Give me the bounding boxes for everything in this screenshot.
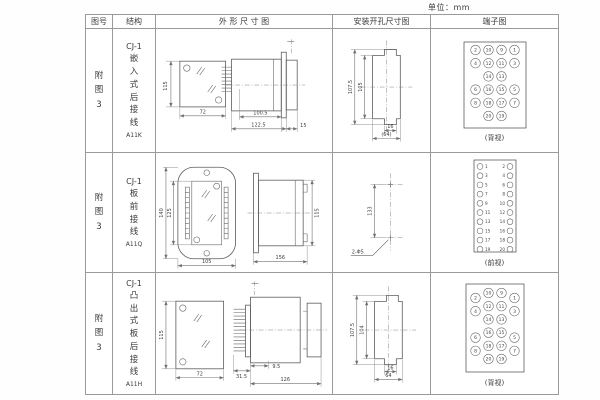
terminal-number: 3 bbox=[513, 60, 516, 66]
terminal-pins-comb bbox=[222, 67, 232, 91]
terminal-number: 9 bbox=[485, 200, 488, 205]
dim-label: 115 bbox=[163, 81, 169, 90]
mounting-hole-drawing-a11k: 107.5 105 16 (64) bbox=[333, 29, 430, 153]
terminal-pin bbox=[507, 172, 513, 178]
dim-label: 9.5 bbox=[272, 363, 280, 369]
terminal-number: 8 bbox=[474, 100, 477, 106]
terminal-diagram-back-view: 2109141211314136161558181772019 bbox=[460, 39, 530, 131]
terminal-view-label: (前视) bbox=[485, 258, 504, 268]
terminal-pin bbox=[507, 218, 513, 224]
terminal-number: 10 bbox=[499, 200, 505, 205]
terminal-number: 13 bbox=[498, 316, 504, 322]
dim-label: 133 bbox=[368, 206, 374, 215]
outline-cell-row2: 140 125 105 156 115 bbox=[156, 153, 333, 273]
terminal-number: 7 bbox=[513, 348, 516, 354]
outline-cell-row1: 115 72 100.5 122.5 bbox=[156, 29, 333, 153]
mounting-hole-drawing-a11h: 107.5 104 16 64 bbox=[333, 273, 430, 395]
structure-desc: 嵌入式后接线 bbox=[129, 53, 139, 130]
terminal-number: 2 bbox=[502, 164, 505, 169]
terminal-cell-row1: 2109141211314136161558181772019 (背视) bbox=[431, 29, 559, 153]
dim-label: 105 bbox=[202, 259, 211, 265]
terminal-number: 20 bbox=[485, 113, 491, 119]
dim-label: 122.5 bbox=[251, 122, 265, 128]
dim-label: 156 bbox=[276, 255, 285, 261]
outline-drawing-a11k: 115 72 100.5 122.5 bbox=[156, 29, 332, 153]
terminal-number: 19 bbox=[498, 113, 504, 119]
terminal-number: 4 bbox=[474, 60, 477, 66]
terminal-diagram-front-view: 1234567891011121314151617181920 bbox=[467, 158, 523, 256]
terminal-number: 8 bbox=[502, 191, 505, 196]
terminal-pin bbox=[507, 182, 513, 188]
terminal-pin bbox=[477, 172, 483, 178]
terminal-pin-grid: 2109141211314136161558181772019 bbox=[470, 45, 519, 121]
dim-label: 126 bbox=[281, 377, 290, 383]
terminal-number: 14 bbox=[485, 73, 491, 79]
terminal-pin bbox=[507, 200, 513, 206]
terminal-diagram-back-view: 2109141211314136161558181772019 bbox=[460, 280, 530, 376]
terminal-number: 3 bbox=[485, 173, 488, 178]
dim-label: 104 bbox=[360, 325, 366, 334]
terminal-number: 18 bbox=[485, 343, 491, 349]
dim-label: 125 bbox=[167, 208, 173, 217]
terminal-pin bbox=[477, 191, 483, 197]
terminal-number: 6 bbox=[474, 87, 477, 93]
terminal-number: 5 bbox=[485, 182, 488, 187]
terminal-pin bbox=[507, 237, 513, 243]
structure-desc: 板前接线 bbox=[129, 188, 139, 239]
dim-label: 2-Φ5 bbox=[352, 249, 364, 255]
terminal-pin bbox=[477, 200, 483, 206]
terminal-number: 6 bbox=[502, 182, 505, 187]
terminal-pin bbox=[477, 209, 483, 215]
terminal-number: 1 bbox=[513, 295, 516, 301]
terminal-pin bbox=[477, 218, 483, 224]
dim-label: 64 bbox=[385, 373, 391, 379]
terminal-number: 12 bbox=[499, 210, 505, 215]
header-terminal: 端子图 bbox=[431, 15, 559, 29]
structure-cell-row2: CJ-1 板前接线 A11Q bbox=[113, 153, 156, 273]
terminal-number: 15 bbox=[498, 87, 504, 93]
terminal-number: 5 bbox=[513, 87, 516, 93]
structure-cell-row1: CJ-1 嵌入式后接线 A11K bbox=[113, 29, 156, 153]
structure-code: A11H bbox=[126, 381, 142, 388]
terminal-pin bbox=[477, 246, 483, 252]
dim-label: 140 bbox=[159, 208, 165, 217]
terminal-number: 14 bbox=[499, 219, 505, 224]
terminal-number: 8 bbox=[474, 348, 477, 354]
figure-cell-row1: 附图3 bbox=[86, 29, 113, 153]
terminal-number: 17 bbox=[498, 343, 504, 349]
structure-code: A11K bbox=[126, 132, 142, 139]
structure-cell-row3: CJ-1 凸出式板后接线 A11H bbox=[113, 273, 156, 395]
structure-model: CJ-1 bbox=[126, 177, 142, 186]
terminal-pin bbox=[477, 182, 483, 188]
terminal-number: 16 bbox=[485, 87, 491, 93]
terminal-number: 9 bbox=[500, 290, 503, 296]
header-figure: 图号 bbox=[86, 15, 113, 29]
dim-label: 115 bbox=[315, 208, 321, 217]
relay-front-view bbox=[180, 61, 226, 107]
terminal-number: 14 bbox=[485, 316, 491, 322]
terminal-cell-row3: 2109141211314136161558181772019 (背视) bbox=[431, 273, 559, 395]
outline-cell-row3: 115 72 31.5 9.5 bbox=[156, 273, 333, 395]
dim-label: 72 bbox=[197, 371, 203, 377]
structure-model: CJ-1 bbox=[126, 42, 142, 51]
terminal-number: 11 bbox=[498, 303, 504, 309]
terminal-cell-row2: 1234567891011121314151617181920 (前视) bbox=[431, 153, 559, 273]
terminal-number: 5 bbox=[513, 335, 516, 341]
header-outline: 外 形 尺 寸 图 bbox=[156, 15, 333, 29]
structure-desc: 凸出式板后接线 bbox=[129, 290, 139, 379]
outline-drawing-a11h: 115 72 31.5 9.5 bbox=[156, 273, 332, 395]
outline-drawing-a11q: 140 125 105 156 115 bbox=[156, 153, 332, 273]
mounting-cell-row2: 133 2-Φ5 bbox=[333, 153, 431, 273]
terminal-number: 10 bbox=[485, 47, 491, 53]
dim-label: 31.5 bbox=[236, 373, 247, 379]
terminal-number: 20 bbox=[499, 246, 505, 251]
terminal-number: 15 bbox=[498, 330, 504, 336]
terminal-number: 9 bbox=[500, 47, 503, 53]
terminal-number: 11 bbox=[485, 210, 491, 215]
terminal-number: 16 bbox=[485, 330, 491, 336]
dim-label: 107.5 bbox=[348, 79, 354, 93]
terminal-pin bbox=[507, 228, 513, 234]
terminal-pin bbox=[507, 209, 513, 215]
dim-label: 115 bbox=[159, 330, 165, 339]
figure-number: 附图3 bbox=[94, 191, 105, 234]
unit-label: 单位：mm bbox=[428, 2, 470, 13]
terminal-number: 12 bbox=[485, 60, 491, 66]
dim-label: 16 bbox=[387, 124, 393, 130]
terminal-pin bbox=[507, 246, 513, 252]
terminal-number: 7 bbox=[513, 100, 516, 106]
terminal-number: 17 bbox=[498, 100, 504, 106]
terminal-number: 20 bbox=[485, 356, 491, 362]
terminal-number: 13 bbox=[498, 73, 504, 79]
terminal-number: 12 bbox=[485, 303, 491, 309]
terminal-view-label: (背视) bbox=[485, 133, 504, 143]
terminal-pin bbox=[507, 191, 513, 197]
dim-label: 15 bbox=[300, 122, 306, 128]
mounting-hole-drawing-a11q: 133 2-Φ5 bbox=[333, 153, 430, 273]
terminal-number: 1 bbox=[513, 47, 516, 53]
terminal-number: 18 bbox=[499, 237, 505, 242]
figure-cell-row2: 附图3 bbox=[86, 153, 113, 273]
terminal-number: 3 bbox=[513, 308, 516, 314]
terminal-number: 2 bbox=[474, 47, 477, 53]
dim-label: (64) bbox=[381, 132, 391, 138]
dim-label: 107.5 bbox=[350, 322, 356, 336]
terminal-number: 4 bbox=[474, 308, 477, 314]
terminal-number: 13 bbox=[485, 219, 491, 224]
terminal-number: 15 bbox=[485, 228, 491, 233]
figure-number: 附图3 bbox=[94, 69, 105, 112]
terminal-number: 7 bbox=[485, 191, 488, 196]
dim-label: 100.5 bbox=[253, 110, 267, 116]
mounting-cell-row1: 107.5 105 16 (64) bbox=[333, 29, 431, 153]
structure-model: CJ-1 bbox=[126, 279, 142, 288]
terminal-number: 1 bbox=[485, 164, 488, 169]
terminal-pin bbox=[477, 228, 483, 234]
terminal-number: 11 bbox=[498, 60, 504, 66]
terminal-number: 2 bbox=[474, 295, 477, 301]
dim-label: 72 bbox=[200, 109, 206, 115]
figure-number: 附图3 bbox=[94, 312, 105, 355]
dim-label: 16 bbox=[387, 365, 393, 371]
terminal-number: 16 bbox=[499, 228, 505, 233]
terminal-pin-grid: 2109141211314136161558181772019 bbox=[470, 288, 519, 364]
terminal-pin-columns: 1234567891011121314151617181920 bbox=[477, 163, 513, 252]
terminal-number: 10 bbox=[485, 290, 491, 296]
terminal-pin bbox=[477, 237, 483, 243]
header-mounting: 安装开孔尺寸图 bbox=[333, 15, 431, 29]
terminal-pin bbox=[477, 163, 483, 169]
terminal-number: 19 bbox=[498, 356, 504, 362]
dim-label: 105 bbox=[358, 82, 364, 91]
terminal-number: 17 bbox=[485, 237, 491, 242]
terminal-pin bbox=[507, 163, 513, 169]
header-structure: 结构 bbox=[113, 15, 156, 29]
structure-code: A11Q bbox=[126, 241, 142, 248]
mounting-cell-row3: 107.5 104 16 64 bbox=[333, 273, 431, 395]
spec-table: 图号 结构 外 形 尺 寸 图 安装开孔尺寸图 端子图 附图3 CJ-1 嵌入式… bbox=[85, 14, 559, 395]
terminal-number: 4 bbox=[502, 173, 505, 178]
terminal-view-label: (背视) bbox=[485, 378, 504, 388]
figure-cell-row3: 附图3 bbox=[86, 273, 113, 395]
terminal-number: 6 bbox=[474, 335, 477, 341]
terminal-number: 18 bbox=[485, 100, 491, 106]
terminal-number: 19 bbox=[485, 246, 491, 251]
